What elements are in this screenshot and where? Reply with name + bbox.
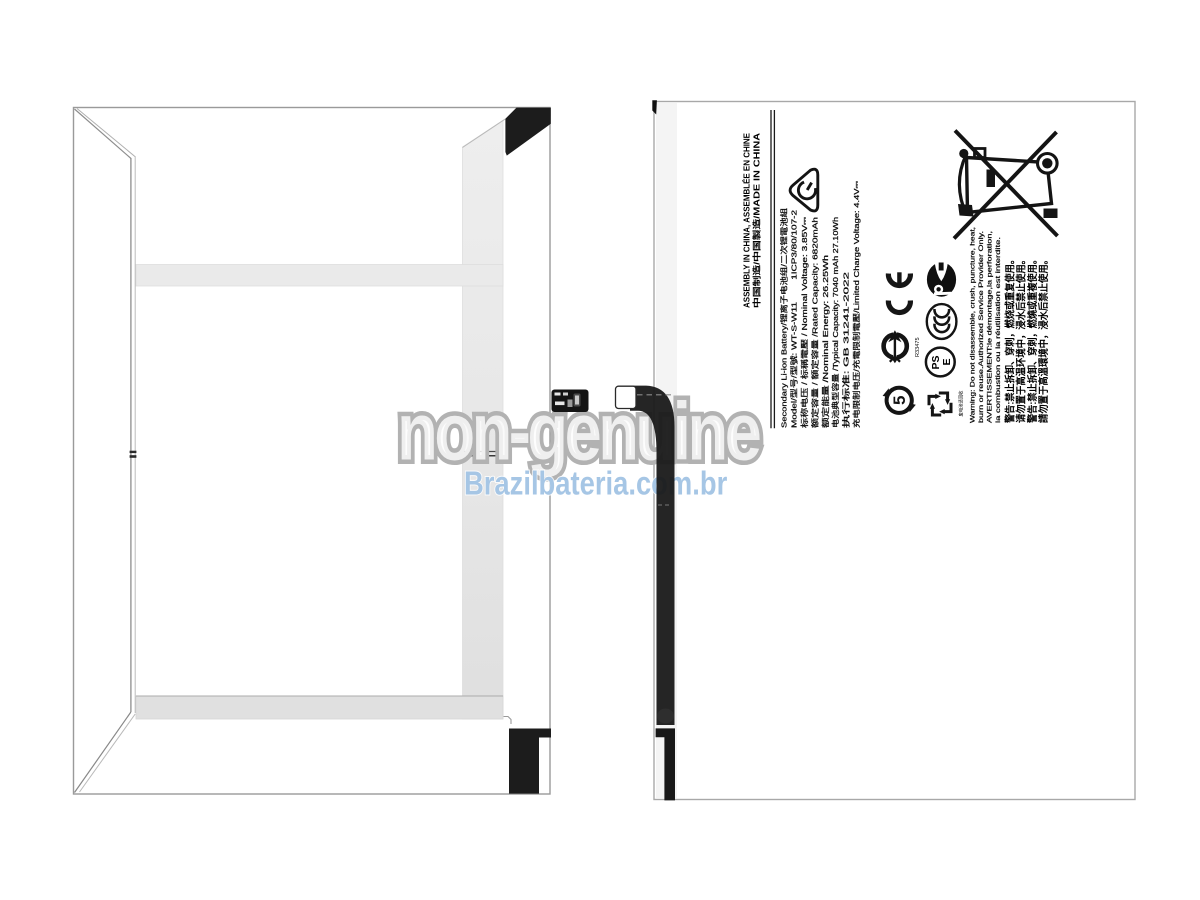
svg-text:Secondary Li-ion Battery/锂离子电池: Secondary Li-ion Battery/锂离子电池组/二次锂電池組 — [779, 207, 789, 428]
svg-text:AVERTISSEMENT:le démontage,la: AVERTISSEMENT:le démontage,la perforatio… — [987, 231, 994, 423]
svg-text:请勿置于高温环境中，浸水后禁止使用。: 请勿置于高温环境中，浸水后禁止使用。 — [1015, 255, 1028, 423]
svg-text:额定容量 / 額定容量 /Rated Capacity: 6: 额定容量 / 額定容量 /Rated Capacity: 6820mAh — [810, 217, 820, 428]
svg-text:警告:禁止拆卸、穿刺，燃燒或重複使用。: 警告:禁止拆卸、穿刺，燃燒或重複使用。 — [1026, 255, 1039, 424]
svg-text:ASSEMBLY IN CHINA, ASSEMBLÉE E: ASSEMBLY IN CHINA, ASSEMBLÉE EN CHINE — [743, 132, 752, 308]
svg-text:中国制造/中国製造/MADE IN CHINA: 中国制造/中国製造/MADE IN CHINA — [752, 133, 762, 308]
svg-text:电池典型容量 /Typical Capacity: 7040: 电池典型容量 /Typical Capacity: 7040 mAh 27.10… — [830, 217, 840, 428]
svg-text:5: 5 — [890, 396, 909, 405]
svg-text:充电限制电压/充電限制電壓/Limited Charge V: 充电限制电压/充電限制電壓/Limited Charge Voltage: 4.… — [851, 180, 861, 428]
svg-text:E: E — [941, 358, 953, 365]
svg-text:标称电压 / 标稱電壓 / Nominal Voltage:: 标称电压 / 标稱電壓 / Nominal Voltage: 3.85V⎓ — [799, 216, 809, 428]
svg-text:Warning: Do not disassemble, c: Warning: Do not disassemble, crush, punc… — [970, 227, 977, 423]
svg-text:Model/型号/型號: WT-S-W11 1: Model/型号/型號: WT-S-W11 1ICP3/80/107-2 — [789, 210, 799, 428]
svg-text:burn or reuse.Authorized Servi: burn or reuse.Authorized Service Provide… — [978, 231, 985, 423]
svg-text:請勿置于高溫環境中，浸水后禁止使用。: 請勿置于高溫環境中，浸水后禁止使用。 — [1037, 255, 1050, 423]
svg-text:R33475: R33475 — [915, 337, 921, 357]
svg-text:Brazilbateria.com.br: Brazilbateria.com.br — [464, 466, 727, 502]
svg-text:执行标准: GB 31241-2022: 执行标准: GB 31241-2022 — [841, 272, 851, 428]
svg-text:la combustion ou la réutilisat: la combustion ou la réutilisation est in… — [995, 237, 1002, 423]
svg-text:警告:禁止拆卸、穿刺，燃烧或重复使用。: 警告:禁止拆卸、穿刺，燃烧或重复使用。 — [1004, 255, 1017, 424]
svg-text:额定能量 /Nominal Energy: 26.25Wh: 额定能量 /Nominal Energy: 26.25Wh — [820, 255, 830, 428]
svg-text:废电池请回收: 废电池请回收 — [957, 390, 964, 416]
